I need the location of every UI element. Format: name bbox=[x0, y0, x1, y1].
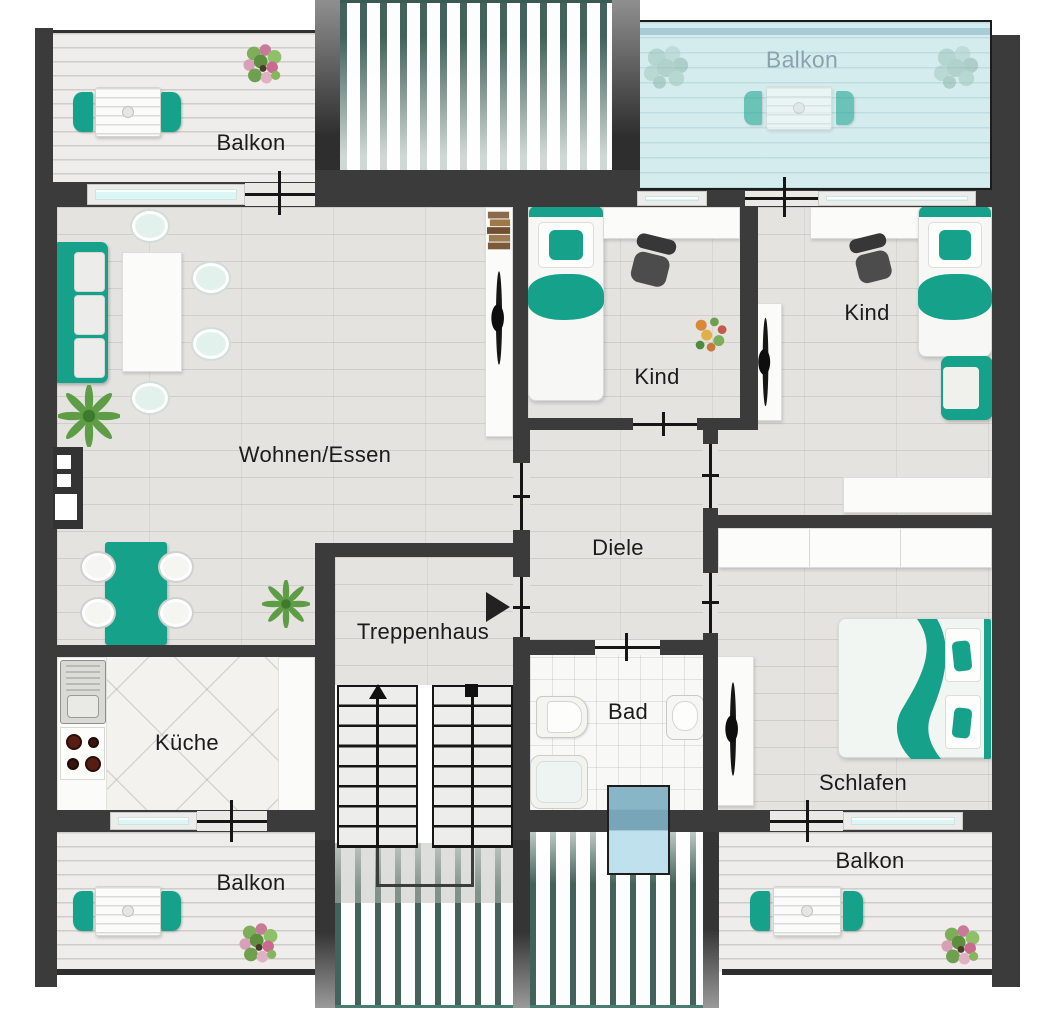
room-label-balkon-bottom-right: Balkon bbox=[835, 848, 904, 874]
room-label-balkon-top-left: Balkon bbox=[216, 130, 285, 156]
balcony-door bbox=[745, 191, 818, 206]
balcony-door bbox=[770, 811, 843, 831]
teal-pillow bbox=[951, 640, 972, 672]
balcony-table bbox=[95, 886, 161, 936]
wall bbox=[703, 430, 718, 444]
office-chair-icon bbox=[620, 232, 684, 292]
roof-hatch-top bbox=[340, 0, 612, 172]
wall bbox=[992, 35, 1020, 987]
kitchen-dining-chair bbox=[158, 551, 194, 583]
stairs-divider bbox=[376, 687, 379, 846]
balcony-chair bbox=[744, 91, 762, 125]
books-icon bbox=[486, 209, 513, 253]
wall bbox=[513, 840, 530, 1008]
roof-hatch-overlay bbox=[335, 843, 513, 903]
dining-chair bbox=[130, 381, 170, 415]
stairs-walkline bbox=[376, 884, 474, 887]
toys-icon bbox=[688, 312, 732, 356]
faded-balcony-furniture bbox=[625, 20, 992, 190]
door-opening bbox=[633, 418, 697, 430]
stove bbox=[60, 727, 105, 780]
tv-icon bbox=[757, 312, 774, 412]
tv-icon bbox=[724, 676, 742, 782]
balcony-chair bbox=[73, 92, 93, 132]
child-bed bbox=[528, 205, 604, 401]
room-label-treppenhaus: Treppenhaus bbox=[357, 619, 489, 645]
door-opening bbox=[703, 444, 718, 508]
window bbox=[110, 812, 197, 830]
window bbox=[637, 191, 707, 206]
balcony-door bbox=[245, 183, 315, 206]
headboard bbox=[984, 619, 991, 759]
wardrobe bbox=[718, 528, 992, 568]
door-opening bbox=[513, 463, 530, 530]
wall bbox=[320, 543, 515, 557]
wall bbox=[35, 645, 315, 657]
kitchen-counter bbox=[278, 657, 315, 812]
wall bbox=[35, 182, 57, 987]
teal-pillow bbox=[951, 707, 972, 739]
wall bbox=[703, 508, 718, 573]
entrance-arrow-icon bbox=[486, 592, 510, 622]
door-opening bbox=[513, 577, 530, 637]
palm-plant-icon bbox=[262, 580, 310, 628]
wall bbox=[315, 543, 335, 848]
armchair bbox=[941, 356, 993, 420]
kitchen-dining-table bbox=[105, 542, 167, 645]
door-opening bbox=[595, 640, 660, 655]
stairs-divider bbox=[471, 687, 474, 846]
balcony-chair bbox=[73, 891, 93, 931]
room-label-schlafen: Schlafen bbox=[819, 770, 907, 796]
room-label-kind-rechts: Kind bbox=[844, 300, 889, 326]
room-label-kind-mitte: Kind bbox=[634, 364, 679, 390]
balcony-table bbox=[766, 86, 832, 130]
balcony-railing bbox=[57, 969, 315, 975]
room-label-diele: Diele bbox=[592, 535, 644, 561]
low-shelf bbox=[843, 477, 992, 513]
double-bed bbox=[838, 618, 992, 758]
dining-chair bbox=[191, 261, 231, 295]
wall bbox=[513, 207, 528, 430]
bush-plant-icon bbox=[640, 42, 692, 94]
wall bbox=[315, 840, 335, 1008]
office-chair-icon bbox=[840, 232, 904, 288]
wall bbox=[740, 190, 758, 430]
flower-plant-icon bbox=[236, 921, 282, 967]
shower-tray bbox=[530, 755, 588, 809]
flower-plant-icon bbox=[938, 923, 984, 969]
balcony-table bbox=[95, 87, 161, 137]
toilet bbox=[536, 696, 588, 738]
room-label-balkon-bottom-left: Balkon bbox=[216, 870, 285, 896]
chimney bbox=[53, 447, 83, 529]
balcony-chair bbox=[843, 891, 863, 931]
wall bbox=[703, 832, 719, 1008]
balcony-table bbox=[773, 886, 841, 936]
balcony-door bbox=[197, 811, 267, 831]
wall bbox=[315, 0, 340, 195]
window bbox=[87, 184, 245, 205]
wall bbox=[612, 0, 640, 195]
stairs-start-marker bbox=[465, 684, 478, 697]
dining-table bbox=[122, 252, 182, 372]
balcony-chair bbox=[161, 891, 181, 931]
window bbox=[843, 812, 963, 830]
wall bbox=[35, 28, 53, 186]
kitchen-dining-chair bbox=[158, 597, 194, 629]
kitchen-dining-chair bbox=[80, 551, 116, 583]
kitchen-dining-chair bbox=[80, 597, 116, 629]
tv-icon bbox=[490, 264, 508, 372]
balcony-chair bbox=[750, 891, 770, 931]
wall bbox=[703, 655, 718, 832]
balcony-chair bbox=[836, 91, 854, 125]
dining-chair bbox=[130, 209, 170, 243]
door-opening bbox=[703, 573, 718, 633]
dining-chair bbox=[191, 327, 231, 361]
bush-plant-icon bbox=[930, 42, 982, 94]
room-label-wohnen-essen: Wohnen/Essen bbox=[239, 442, 391, 468]
stairs-walkline bbox=[376, 848, 379, 886]
kitchen-sink bbox=[60, 660, 106, 724]
balcony-chair bbox=[161, 92, 181, 132]
bathroom-sink bbox=[666, 695, 704, 740]
room-label-balkon-top-right: Balkon bbox=[766, 47, 838, 74]
roof-skylight bbox=[607, 785, 670, 875]
child-bed bbox=[918, 205, 992, 357]
room-label-kueche: Küche bbox=[155, 730, 219, 756]
room-label-bad: Bad bbox=[608, 699, 648, 725]
sofa bbox=[52, 242, 108, 383]
stairs-up-arrow-icon bbox=[369, 684, 387, 699]
green-plant-icon bbox=[58, 385, 120, 447]
balcony-railing bbox=[722, 969, 992, 975]
window bbox=[818, 191, 976, 206]
stairs-walkline bbox=[471, 848, 474, 886]
floor-plan: Balkon Balkon Wohnen/Essen Kind Kind Die… bbox=[0, 0, 1038, 1023]
flower-plant-icon bbox=[240, 42, 286, 88]
wall bbox=[718, 515, 992, 528]
